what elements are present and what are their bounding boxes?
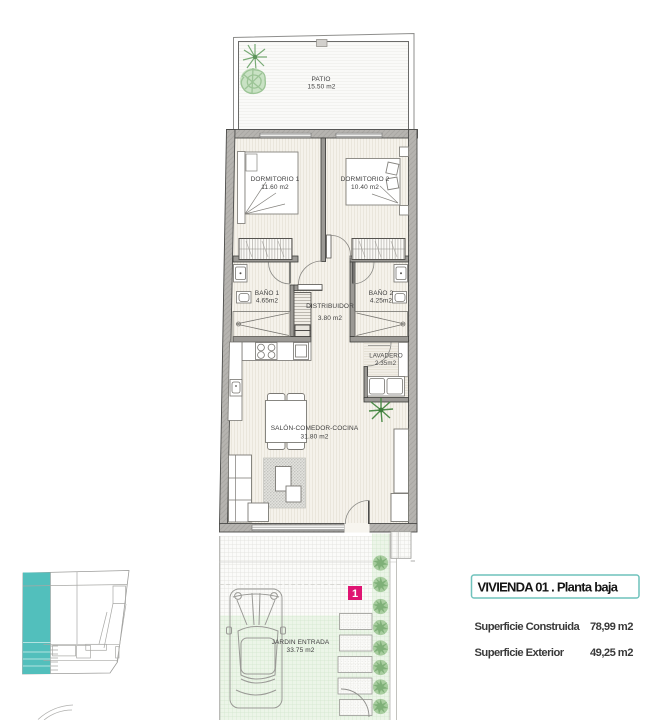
svg-text:10.40 m2: 10.40 m2: [351, 184, 379, 191]
svg-text:49,25 m2: 49,25 m2: [590, 647, 633, 659]
svg-text:JARDIN ENTRADA: JARDIN ENTRADA: [272, 639, 330, 646]
svg-text:BAÑO 2: BAÑO 2: [369, 288, 394, 297]
svg-text:1: 1: [352, 588, 358, 600]
svg-text:4.25m2: 4.25m2: [370, 298, 393, 305]
svg-text:15.50 m2: 15.50 m2: [308, 84, 336, 91]
svg-text:2.35m2: 2.35m2: [375, 360, 397, 367]
svg-text:4.65m2: 4.65m2: [256, 298, 279, 305]
svg-text:PATIO: PATIO: [311, 76, 330, 83]
svg-text:11.60 m2: 11.60 m2: [261, 184, 289, 191]
svg-text:DORMITORIO 1: DORMITORIO 1: [251, 176, 300, 183]
svg-text:DORMITORIO 2: DORMITORIO 2: [341, 176, 390, 183]
svg-text:Superficie Exterior: Superficie Exterior: [475, 647, 565, 659]
svg-text:LAVADERO: LAVADERO: [369, 353, 403, 360]
svg-text:VIVIENDA 01 . Planta baja: VIVIENDA 01 . Planta baja: [478, 580, 619, 595]
svg-text:33.75 m2: 33.75 m2: [287, 647, 315, 654]
svg-text:BAÑO 1: BAÑO 1: [255, 288, 280, 297]
svg-text:DISTRIBUIDOR: DISTRIBUIDOR: [306, 303, 354, 310]
svg-text:SALÓN-COMEDOR-COCINA: SALÓN-COMEDOR-COCINA: [271, 423, 359, 432]
svg-text:3.80 m2: 3.80 m2: [318, 315, 342, 322]
svg-text:31.80 m2: 31.80 m2: [301, 434, 329, 441]
svg-text:Superficie Construida: Superficie Construida: [475, 621, 581, 633]
svg-text:78,99 m2: 78,99 m2: [590, 621, 633, 633]
